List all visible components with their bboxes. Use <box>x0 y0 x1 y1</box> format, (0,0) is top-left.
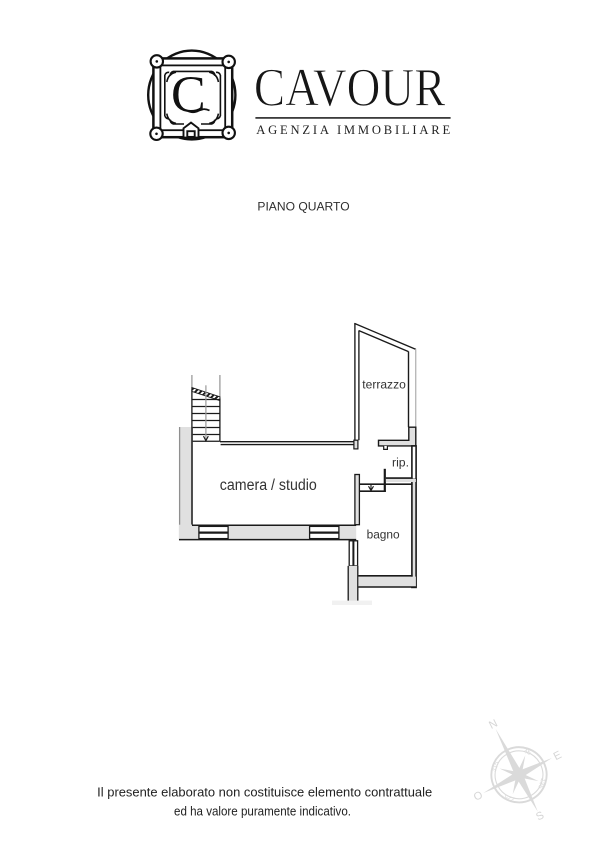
svg-text:CAVOUR: CAVOUR <box>254 58 446 118</box>
svg-text:Il presente elaborato non cost: Il presente elaborato non costituisce el… <box>97 785 432 799</box>
svg-text:C: C <box>171 67 206 124</box>
svg-text:ed ha valore puramente indicat: ed ha valore puramente indicativo. <box>174 804 351 818</box>
svg-text:PIANO QUARTO: PIANO QUARTO <box>257 199 349 213</box>
svg-text:AGENZIA IMMOBILIARE: AGENZIA IMMOBILIARE <box>256 123 450 137</box>
svg-text:rip.: rip. <box>392 456 409 470</box>
svg-text:terrazzo: terrazzo <box>362 378 406 392</box>
svg-text:camera / studio: camera / studio <box>220 477 317 494</box>
svg-text:bagno: bagno <box>367 527 400 541</box>
